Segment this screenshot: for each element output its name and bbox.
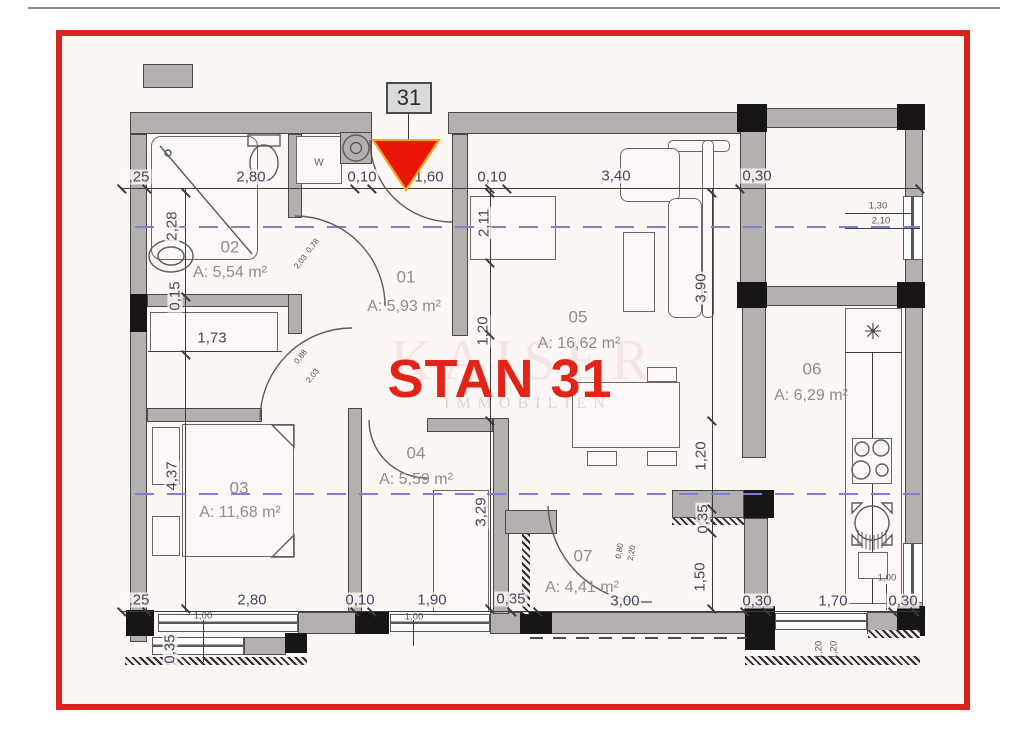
sill-line [203, 620, 204, 662]
dim-balcony-1: 1,20 [814, 641, 824, 660]
room-01-area: A: 5,93 m² [367, 299, 441, 315]
apartment-title: STAN 31 [387, 348, 612, 410]
section-line [135, 493, 920, 495]
dim-line-top [120, 188, 920, 189]
dim-sill-1: 1,00 [194, 611, 213, 621]
wall-segment [130, 134, 147, 642]
dim-bottom-2: 2,80 [235, 593, 268, 608]
wall-segment [427, 418, 493, 432]
room-07-id: 07 [574, 548, 593, 565]
chair [587, 451, 617, 466]
stove [852, 438, 892, 484]
wall-segment [550, 612, 746, 634]
column [897, 104, 925, 130]
dim-bottom-9: 0,30 [886, 594, 919, 609]
chair [647, 451, 677, 466]
dim-left-3: 4,37 [165, 459, 180, 492]
boiler-base [340, 132, 372, 164]
dim-top-6: 3,40 [599, 169, 632, 184]
terrace-dashed-line [530, 637, 746, 639]
dim-left-2: 0,15 [168, 279, 183, 312]
dim-bottom-4: 1,90 [415, 593, 448, 608]
dim-top-2: 2,80 [234, 170, 267, 185]
room-03-id: 03 [230, 480, 249, 497]
wall-segment [740, 112, 766, 304]
dim-line-left [185, 188, 186, 612]
page-top-rule [28, 7, 1000, 9]
room-05-id: 05 [569, 309, 588, 326]
window-dim-line [845, 228, 920, 229]
room-02-area: A: 5,54 m² [193, 265, 267, 281]
dim-left-4: 0,35 [163, 632, 178, 665]
wall-segment [298, 612, 356, 634]
dim-window-width: 1,30 [869, 201, 888, 211]
room-04-area: A: 5,59 m² [379, 472, 453, 488]
wall-segment [348, 408, 362, 612]
parapet-segment [244, 637, 286, 655]
sill-line [413, 620, 414, 646]
dim-balcony-2: 1,20 [829, 641, 839, 660]
wardrobe-dim-line [148, 351, 282, 352]
wall-segment [147, 408, 262, 422]
dim-hall-height: 2,11 [477, 207, 492, 239]
wall-segment [505, 510, 557, 534]
wall-segment [742, 306, 766, 458]
dim-pass: 1,20 [694, 439, 709, 472]
column [285, 633, 307, 653]
dim-top-1: ,25 [127, 170, 152, 185]
dim-bottom-3: 0,10 [343, 593, 376, 608]
dim-line-bottom [120, 611, 920, 612]
wall-segment [490, 612, 522, 634]
wall-segment [448, 112, 740, 134]
column [737, 104, 767, 132]
dim-bottom-6: 3,00 [608, 594, 641, 609]
column [130, 294, 147, 332]
room-06-area: A: 6,29 m² [774, 388, 848, 404]
dim-sill-3: 1,00 [878, 573, 897, 583]
coffee-table [623, 232, 655, 312]
section-line [135, 226, 920, 228]
wall-segment [130, 112, 372, 134]
room-04-id: 04 [407, 445, 426, 462]
room-06-id: 06 [803, 361, 822, 378]
washer-label: w [314, 155, 323, 168]
dim-top-5: 0,10 [475, 170, 508, 185]
dim-living: 3,90 [694, 271, 709, 304]
floor-plan: KAISER IMMOBILIEN [0, 0, 1028, 745]
hatch-strip [125, 657, 307, 665]
entrance-triangle-icon [375, 141, 437, 188]
dim-left-1: 2,28 [165, 209, 180, 242]
hatch-strip [868, 630, 920, 638]
room-02-id: 02 [221, 239, 240, 256]
adjacent-unit-marker [143, 64, 193, 88]
dim-top-7: 0,30 [740, 169, 773, 184]
window [775, 613, 867, 630]
column [737, 282, 767, 308]
window-dim-line [845, 213, 912, 214]
dim-window-height: 2,10 [872, 216, 891, 226]
dim-bottom-5: 0,35 [494, 592, 527, 607]
column [745, 606, 775, 650]
nightstand [152, 516, 180, 556]
counter-divider [845, 352, 902, 353]
wall-segment [452, 134, 468, 336]
dim-sill-2: 1,00 [405, 612, 424, 622]
dim-wardrobe: 1,73 [195, 331, 228, 346]
wall-segment [288, 294, 302, 334]
column [897, 282, 925, 308]
dim-hall07: 1,50 [693, 560, 708, 593]
dim-bottom-8: 1,70 [816, 594, 849, 609]
dim-bottom-7: 0,30 [740, 594, 773, 609]
fridge-icon: ✳ [864, 321, 882, 343]
dim-line-right [712, 188, 713, 612]
column [520, 612, 552, 634]
room-03-area: A: 11,68 m² [199, 505, 281, 521]
dim-closet: 3,29 [474, 495, 489, 528]
column [355, 612, 389, 634]
dim-bottom-1: ,25 [127, 593, 152, 608]
window [158, 614, 298, 632]
unit-number-box: 31 [386, 82, 432, 114]
room-01-id: 01 [397, 269, 416, 286]
